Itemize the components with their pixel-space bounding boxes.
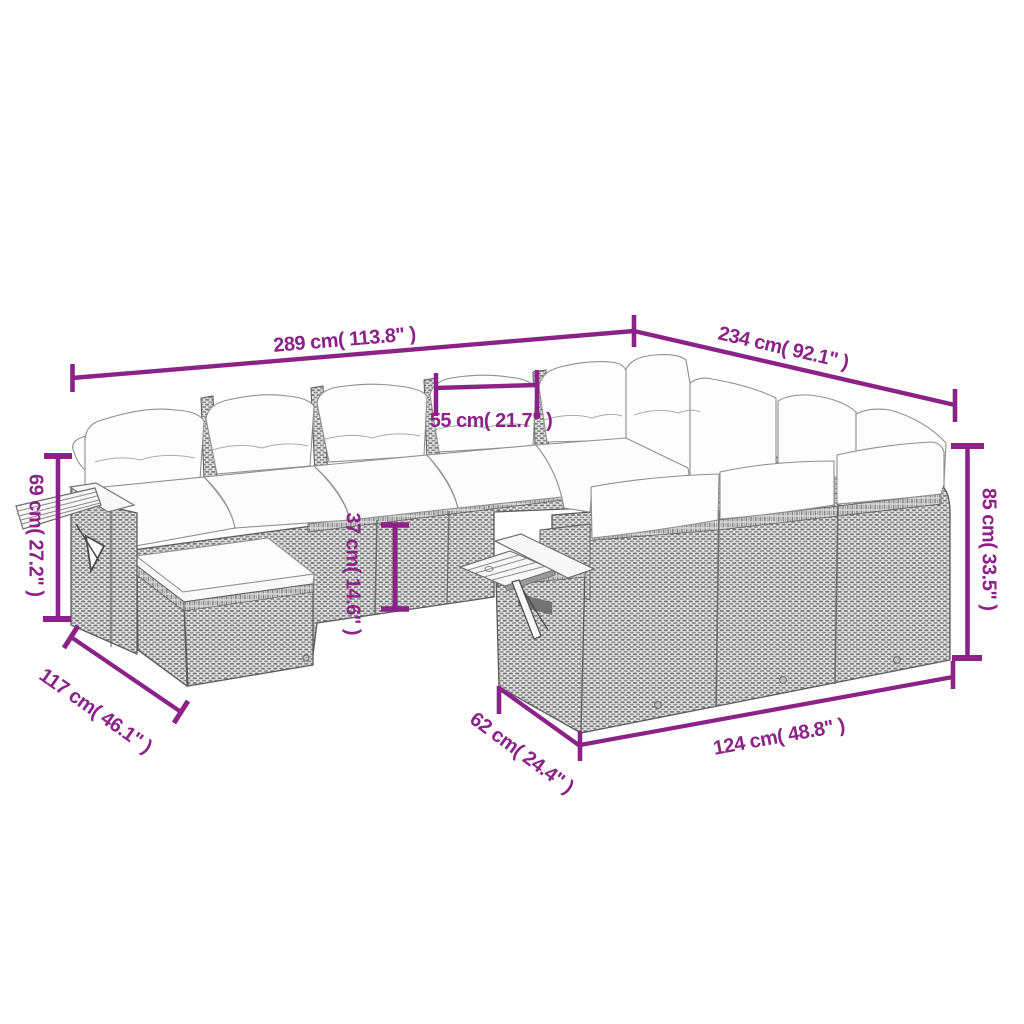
svg-text:37 cm( 14.6" ): 37 cm( 14.6" )	[342, 513, 364, 636]
svg-text:85 cm( 33.5" ): 85 cm( 33.5" )	[978, 488, 1000, 611]
svg-text:69 cm( 27.2" ): 69 cm( 27.2" )	[25, 474, 47, 597]
svg-text:55 cm( 21.7" ): 55 cm( 21.7" )	[430, 410, 553, 432]
